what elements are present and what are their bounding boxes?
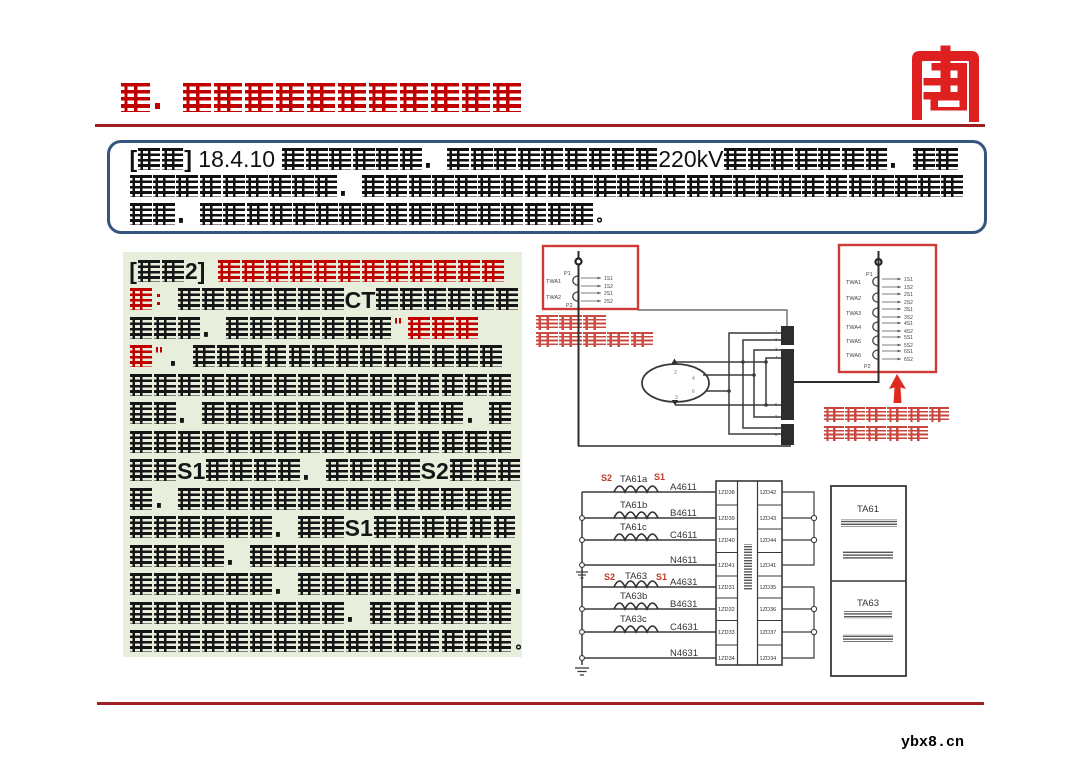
- svg-text:TA61: TA61: [857, 504, 879, 515]
- svg-text:5S1: 5S1: [904, 335, 913, 341]
- svg-text:N4631: N4631: [670, 648, 698, 659]
- svg-text:2S1: 2S1: [904, 292, 913, 298]
- svg-text:A4611: A4611: [670, 482, 697, 493]
- svg-text:1ZD36: 1ZD36: [760, 607, 777, 613]
- svg-text:C4611: C4611: [670, 530, 697, 541]
- svg-text:TA63: TA63: [857, 598, 879, 609]
- svg-text:TA63b: TA63b: [620, 591, 647, 602]
- svg-text:1ZD41: 1ZD41: [718, 563, 735, 569]
- svg-text:P2: P2: [864, 364, 871, 370]
- svg-text:2S2: 2S2: [604, 299, 613, 305]
- svg-text:1ZD39: 1ZD39: [718, 516, 735, 522]
- svg-text:1S1: 1S1: [904, 277, 913, 283]
- svg-text:B4631: B4631: [670, 599, 697, 610]
- svg-text:A4631: A4631: [670, 577, 697, 588]
- svg-text:TWA6: TWA6: [846, 353, 861, 359]
- svg-text:1ZD38: 1ZD38: [718, 490, 735, 496]
- svg-text:4: 4: [692, 376, 695, 382]
- svg-text:1ZD37: 1ZD37: [760, 630, 777, 636]
- svg-text:1S1: 1S1: [604, 276, 613, 282]
- svg-text:TWA3: TWA3: [846, 311, 861, 317]
- svg-text:P2: P2: [566, 303, 573, 309]
- svg-text:P1: P1: [564, 271, 571, 277]
- svg-text:TWA1: TWA1: [546, 279, 561, 285]
- svg-text:1ZD40: 1ZD40: [718, 538, 735, 544]
- svg-text:1ZD41: 1ZD41: [760, 563, 777, 569]
- svg-text:S2: S2: [601, 473, 612, 483]
- svg-text:1ZD44: 1ZD44: [760, 538, 777, 544]
- svg-text:P1: P1: [866, 272, 873, 278]
- svg-text:1ZD34: 1ZD34: [718, 656, 735, 662]
- svg-text:S1: S1: [654, 472, 665, 482]
- svg-text:1S2: 1S2: [604, 284, 613, 290]
- svg-text:6S2: 6S2: [904, 357, 913, 363]
- svg-text:1ZD32: 1ZD32: [718, 607, 735, 613]
- svg-text:TA61a: TA61a: [620, 474, 648, 485]
- svg-text:S1: S1: [656, 572, 667, 582]
- svg-text:2S2: 2S2: [904, 300, 913, 306]
- svg-text:TA63: TA63: [625, 571, 647, 582]
- svg-text:TWA5: TWA5: [846, 339, 861, 345]
- svg-text:B4611: B4611: [670, 508, 697, 519]
- svg-text:S2: S2: [604, 572, 615, 582]
- svg-text:N4611: N4611: [670, 555, 697, 566]
- svg-text:6S1: 6S1: [904, 349, 913, 355]
- svg-text:3S1: 3S1: [904, 307, 913, 313]
- svg-text:C4631: C4631: [670, 622, 698, 633]
- svg-text:TWA1: TWA1: [846, 280, 861, 286]
- svg-text:1S2: 1S2: [904, 285, 913, 291]
- svg-text:TA63c: TA63c: [620, 614, 647, 625]
- svg-text:TWA4: TWA4: [846, 325, 861, 331]
- svg-text:TA61c: TA61c: [620, 522, 647, 533]
- svg-text:2: 2: [674, 370, 677, 376]
- svg-text:4S1: 4S1: [904, 321, 913, 327]
- svg-text:1ZD35: 1ZD35: [760, 585, 777, 591]
- svg-text:1ZD34: 1ZD34: [760, 656, 777, 662]
- svg-text:TA61b: TA61b: [620, 500, 647, 511]
- svg-text:1ZD33: 1ZD33: [718, 630, 735, 636]
- svg-text:1ZD43: 1ZD43: [760, 516, 777, 522]
- svg-text:1ZD31: 1ZD31: [718, 585, 735, 591]
- svg-text:2S1: 2S1: [604, 291, 613, 297]
- svg-text:TWA2: TWA2: [846, 296, 861, 302]
- svg-text:6: 6: [692, 389, 695, 395]
- svg-text:1ZD42: 1ZD42: [760, 490, 777, 496]
- svg-text:TWA2: TWA2: [546, 295, 561, 301]
